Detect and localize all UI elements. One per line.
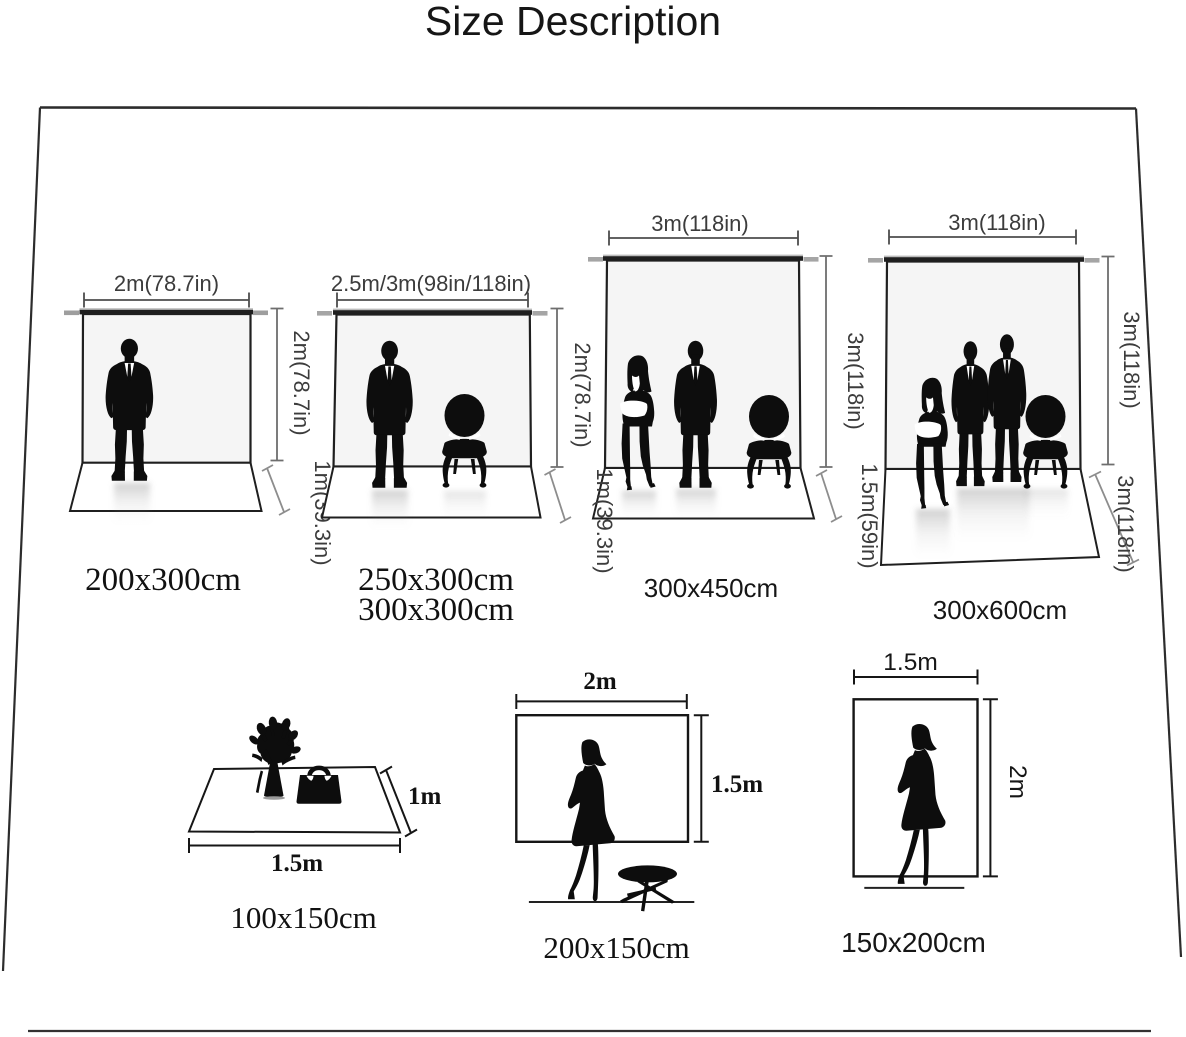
svg-text:300x600cm: 300x600cm — [933, 595, 1067, 625]
svg-text:2m(78.7in): 2m(78.7in) — [289, 330, 314, 435]
svg-text:2m(78.7in): 2m(78.7in) — [114, 271, 219, 296]
svg-text:3m(118in): 3m(118in) — [1119, 311, 1144, 408]
svg-text:300x300cm: 300x300cm — [358, 592, 514, 628]
svg-text:100x150cm: 100x150cm — [230, 900, 376, 935]
svg-text:Size Description: Size Description — [425, 0, 721, 44]
svg-text:2.5m/3m(98in/118in): 2.5m/3m(98in/118in) — [331, 271, 531, 296]
svg-text:1.5m: 1.5m — [271, 850, 323, 877]
svg-text:1m: 1m — [408, 783, 442, 810]
svg-text:1m(39.3in): 1m(39.3in) — [592, 468, 617, 573]
svg-text:3m(118in): 3m(118in) — [651, 211, 748, 236]
svg-text:1.5m: 1.5m — [883, 649, 937, 676]
svg-text:2m: 2m — [1004, 765, 1031, 799]
svg-text:2m: 2m — [583, 668, 617, 695]
svg-text:200x150cm: 200x150cm — [543, 930, 689, 965]
svg-text:3m(118in): 3m(118in) — [948, 210, 1045, 235]
svg-text:1.5m: 1.5m — [711, 771, 763, 798]
svg-text:3m(118in): 3m(118in) — [843, 332, 868, 429]
svg-text:2m(78.7in): 2m(78.7in) — [570, 342, 595, 447]
svg-text:150x200cm: 150x200cm — [841, 927, 986, 958]
svg-text:1.5m(59in): 1.5m(59in) — [857, 463, 882, 568]
svg-text:200x300cm: 200x300cm — [85, 562, 241, 598]
svg-text:300x450cm: 300x450cm — [644, 573, 778, 603]
svg-text:3m(118in): 3m(118in) — [1113, 475, 1138, 572]
